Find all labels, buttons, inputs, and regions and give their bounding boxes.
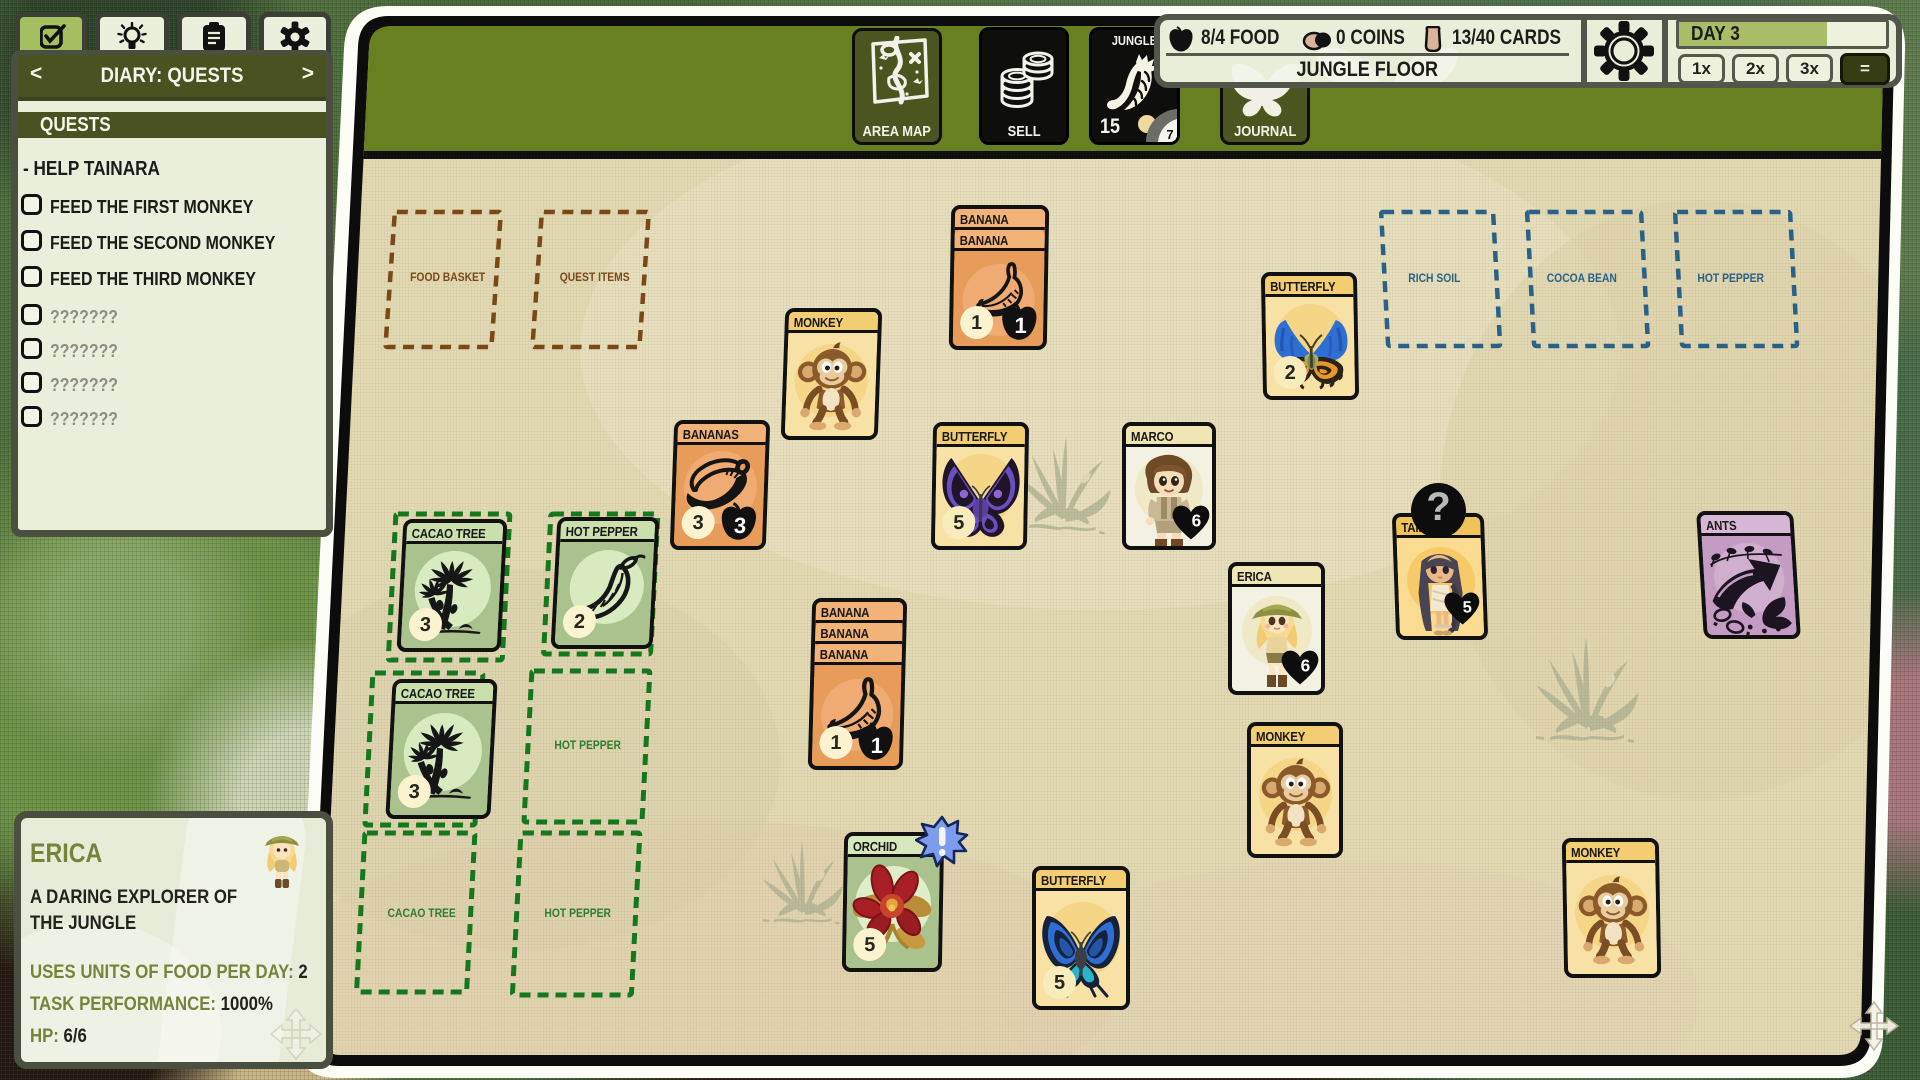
svg-text:6: 6 [1192, 511, 1202, 531]
svg-text:7: 7 [1166, 127, 1173, 142]
svg-text:3: 3 [733, 513, 746, 538]
svg-text:1: 1 [870, 733, 883, 758]
svg-text:6: 6 [1301, 656, 1311, 676]
svg-text:1: 1 [1014, 313, 1027, 338]
svg-text:5: 5 [1462, 598, 1472, 616]
